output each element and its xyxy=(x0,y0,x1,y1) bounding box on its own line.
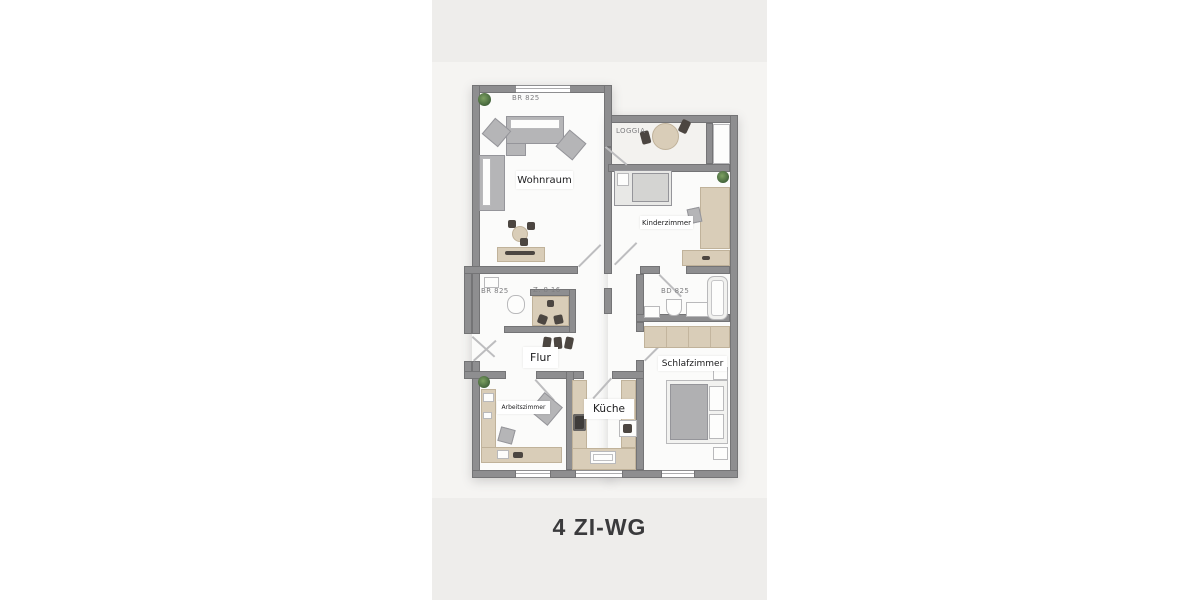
wardrobe-divider-3 xyxy=(710,327,711,347)
wall-bottom-d xyxy=(694,470,738,478)
wall-kinderzimmer-bottom-b xyxy=(686,266,730,274)
room-label-flur: Flur xyxy=(523,347,558,368)
kids-desk xyxy=(700,187,730,249)
wall-top-right xyxy=(608,115,738,123)
oven-door xyxy=(623,424,632,433)
annotation-br825-top: BR 825 xyxy=(512,94,540,102)
annotation-z816: Z. 8 16 xyxy=(533,286,561,294)
bed-pillow-1 xyxy=(709,386,724,411)
plant-kinderzimmer xyxy=(717,171,729,183)
wall-flur-schlafzimmer-a xyxy=(636,322,644,332)
room-label-schlafzimmer: Schlafzimmer xyxy=(658,356,727,371)
wall-kinderzimmer-bottom-a xyxy=(640,266,660,274)
wall-bottom-c xyxy=(622,470,662,478)
kitchen-sink xyxy=(590,451,616,464)
room-label-arbeitszimmer: Arbeitszimmer xyxy=(497,401,550,414)
wall-right xyxy=(730,115,738,478)
kids-bed-blanket xyxy=(632,173,669,202)
wall-bottom-a xyxy=(472,470,516,478)
kids-bed-pillow xyxy=(617,173,629,186)
wall-wohnraum-right xyxy=(604,85,612,147)
wall-mid-horizontal xyxy=(464,266,578,274)
sofa-cushions xyxy=(510,119,560,129)
window-bottom-kueche xyxy=(576,470,622,478)
kids-dresser-handle xyxy=(702,256,710,260)
room-label-kueche: Küche xyxy=(584,399,634,419)
room-label-kinderzimmer: Kinderzimmer xyxy=(640,216,693,229)
loggia-table xyxy=(652,123,679,150)
floorplan-image: Wohnraum Kinderzimmer Flur Schlafzimmer … xyxy=(0,0,1200,600)
wall-flur-bottom-c xyxy=(612,371,644,379)
annotation-bd825: BD 825 xyxy=(661,287,689,295)
bad-toilet xyxy=(666,299,682,316)
room-label-wohnraum: Wohnraum xyxy=(516,171,573,189)
plan-title: 4 ZI-WG xyxy=(432,514,767,541)
annotation-br825-mid: BR 825 xyxy=(481,287,509,295)
wardrobe-item xyxy=(547,300,554,307)
bad-cabinet xyxy=(644,306,660,318)
dining-chair-1 xyxy=(508,220,516,228)
builtin-closet xyxy=(713,124,730,164)
window-bottom-schlafzimmer xyxy=(662,470,694,478)
wall-bottom-b xyxy=(550,470,576,478)
plant-wohnraum xyxy=(478,93,491,106)
window-bottom-arbeitszimmer xyxy=(516,470,550,478)
annotation-loggia: LOGGIA xyxy=(616,127,645,135)
desk-item-2 xyxy=(483,412,492,419)
desk-item-dark xyxy=(513,452,523,458)
wall-bad-left xyxy=(636,274,644,318)
sofa-left-cushions xyxy=(482,158,491,206)
desk-item-1 xyxy=(483,393,494,402)
dining-chair-2 xyxy=(520,238,528,246)
plant-arbeitszimmer xyxy=(478,376,490,388)
wc-toilet xyxy=(507,295,525,314)
nightstand-2 xyxy=(713,447,728,460)
wall-wc-bottom xyxy=(504,326,570,333)
double-bed-blanket xyxy=(670,384,708,440)
shoes-shelf-pair-2 xyxy=(553,314,564,325)
bathtub xyxy=(707,276,728,320)
wall-closet-left xyxy=(706,123,713,164)
wardrobe-divider-1 xyxy=(666,327,667,347)
window-wohnraum-top xyxy=(516,85,570,93)
printer xyxy=(497,450,509,459)
dining-chair-3 xyxy=(527,222,535,230)
bedroom-wardrobe xyxy=(644,326,730,348)
wall-left-bump-a xyxy=(464,266,472,334)
wardrobe-divider-2 xyxy=(688,327,689,347)
tv-on-sideboard xyxy=(505,251,535,255)
wall-niche-right xyxy=(569,289,576,333)
bed-pillow-2 xyxy=(709,414,724,439)
wall-flur-bottom-b xyxy=(536,371,584,379)
wall-center-stub xyxy=(604,288,612,314)
